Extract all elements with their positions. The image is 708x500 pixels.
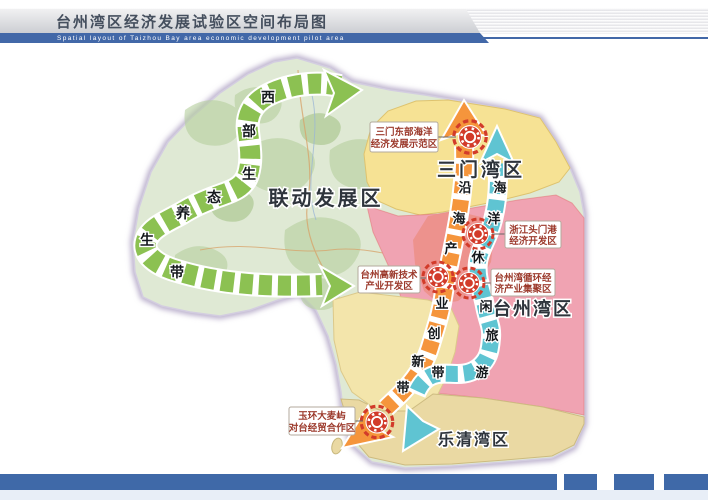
zone-label-line: 对台经贸合作区 [289,422,356,434]
belt-char: 西 [261,89,275,105]
belt-char: 闲 [479,299,492,314]
zone-label-line: 经济发展示范区 [371,138,438,150]
poi-damaiyu-icon [361,406,393,438]
poi-sanmen-east-icon [454,121,486,153]
page: 台州湾区经济发展试验区空间布局图 Spatial layout of Taizh… [0,0,708,500]
belt-char: 休 [470,250,485,265]
islet [330,437,344,455]
belt-char: 创 [426,326,440,341]
belt-char: 产 [444,241,457,256]
belt-char: 带 [431,365,444,380]
belt-char: 洋 [487,211,500,226]
belt-char: 海 [452,211,465,226]
zone-label-line: 台州高新技术 [360,269,418,281]
zone-label-line: 产业开发区 [365,280,413,292]
belt-char: 养 [175,205,191,221]
region-label-linkage: 联动发展区 [269,186,384,210]
belt-char: 沿 [458,180,471,195]
footer-bar-segment [564,474,597,490]
footer-bottom-strip [0,490,708,500]
poi-circular-economy-icon [454,268,484,298]
poi-hightech-icon [423,262,453,292]
zone-label-line: 浙江头门港 [509,224,557,236]
zone-label-line: 三门东部海洋 [375,126,433,138]
region-label-yueqing-bay: 乐清湾区 [438,430,510,449]
footer-bar-segment [664,474,708,490]
belt-char: 部 [242,123,256,139]
belt-char: 带 [170,264,184,280]
belt-char: 业 [435,296,448,311]
zone-label-line: 玉环大麦屿 [298,410,346,422]
footer-bar [0,474,708,490]
region-label-taizhou-bay: 台州湾区 [493,298,573,319]
spatial-layout-map: 联动发展区 三门湾区 台州湾区 乐清湾区 三门东部海洋 经济发展示范区 [0,0,708,500]
zone-label-line: 台州湾循环经 [494,272,552,284]
footer-bar-segment [0,474,557,490]
footer-bar-segment [614,474,654,490]
belt-char: 生 [242,166,256,182]
belt-char: 生 [140,232,154,248]
belt-char: 态 [207,189,221,205]
region-label-sanmen-bay: 三门湾区 [437,158,525,181]
belt-char: 游 [475,365,488,380]
belt-char: 带 [396,380,409,395]
zone-label-line: 济产业集聚区 [494,283,552,295]
belt-char: 海 [493,180,506,195]
zone-label-line: 经济开发区 [509,235,557,247]
belt-char: 旅 [485,328,498,343]
belt-char: 新 [411,354,424,369]
